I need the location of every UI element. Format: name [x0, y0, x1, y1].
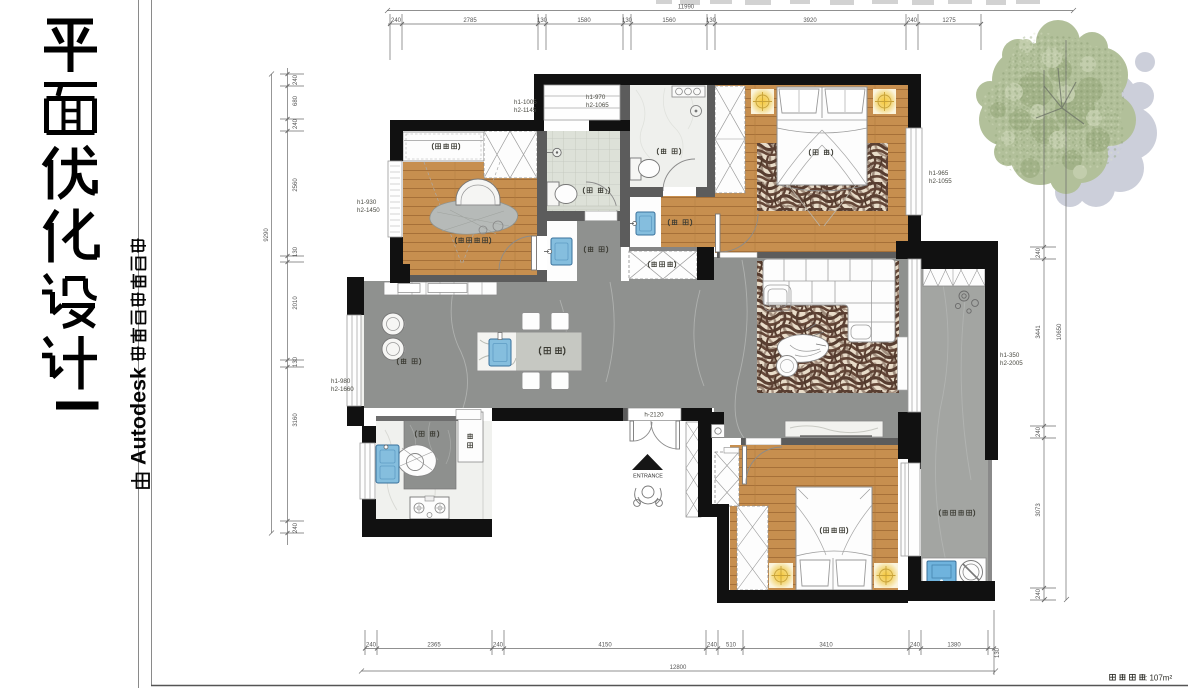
svg-text:130: 130 [995, 647, 1001, 658]
svg-text:2010: 2010 [293, 296, 299, 310]
svg-text:1380: 1380 [947, 643, 961, 649]
svg-text:h2-2005: h2-2005 [1000, 360, 1023, 367]
svg-text:240: 240 [707, 643, 718, 649]
svg-text:130: 130 [706, 18, 717, 24]
svg-text:h2-1065: h2-1065 [586, 102, 609, 109]
svg-text:: 107m²: : 107m² [1145, 674, 1172, 683]
svg-text:h1-980: h1-980 [331, 378, 351, 385]
svg-text:240: 240 [1036, 247, 1042, 258]
svg-text:12800: 12800 [670, 665, 687, 671]
svg-text:3410: 3410 [819, 643, 833, 649]
svg-text:240: 240 [293, 522, 299, 533]
svg-text:240: 240 [1036, 588, 1042, 599]
svg-text:Autodesk: Autodesk [127, 367, 151, 465]
svg-text:h2-1145: h2-1145 [514, 107, 537, 114]
svg-text:h2-1055: h2-1055 [929, 178, 952, 185]
svg-text:h1-965: h1-965 [929, 170, 949, 177]
svg-text:130: 130 [537, 18, 548, 24]
svg-text:2785: 2785 [463, 18, 477, 24]
svg-text:2560: 2560 [293, 178, 299, 192]
svg-text:3160: 3160 [293, 413, 299, 427]
svg-text:10650: 10650 [1057, 323, 1063, 340]
svg-text:11990: 11990 [678, 5, 695, 11]
svg-text:h-2120: h-2120 [644, 412, 664, 419]
svg-text:240: 240 [910, 643, 921, 649]
svg-text:h1-930: h1-930 [357, 199, 377, 206]
svg-text:130: 130 [622, 18, 633, 24]
svg-text:130: 130 [293, 356, 299, 367]
svg-text:240: 240 [366, 643, 377, 649]
svg-text:ENTRANCE: ENTRANCE [633, 474, 663, 480]
svg-text:240: 240 [293, 118, 299, 129]
svg-text:1580: 1580 [577, 18, 591, 24]
svg-text:h2-1450: h2-1450 [357, 207, 380, 214]
svg-text:240: 240 [293, 74, 299, 85]
svg-text:1560: 1560 [662, 18, 676, 24]
svg-text:510: 510 [726, 643, 737, 649]
svg-text:3441: 3441 [1036, 325, 1042, 339]
svg-text:240: 240 [391, 18, 402, 24]
svg-text:1275: 1275 [942, 18, 956, 24]
svg-text:680: 680 [293, 95, 299, 106]
svg-text:240: 240 [493, 643, 504, 649]
svg-text:9290: 9290 [264, 228, 270, 242]
svg-text:3073: 3073 [1036, 503, 1042, 517]
svg-text:2365: 2365 [427, 643, 441, 649]
svg-text:240: 240 [907, 18, 918, 24]
svg-text:h2-1660: h2-1660 [331, 386, 354, 393]
svg-text:3920: 3920 [803, 18, 817, 24]
svg-text:240: 240 [1036, 426, 1042, 437]
svg-text:h1-350: h1-350 [1000, 352, 1020, 359]
svg-text:h1-970: h1-970 [586, 94, 606, 101]
svg-text:h1-1005: h1-1005 [514, 99, 537, 106]
svg-text:4150: 4150 [598, 643, 612, 649]
svg-text:130: 130 [293, 246, 299, 257]
